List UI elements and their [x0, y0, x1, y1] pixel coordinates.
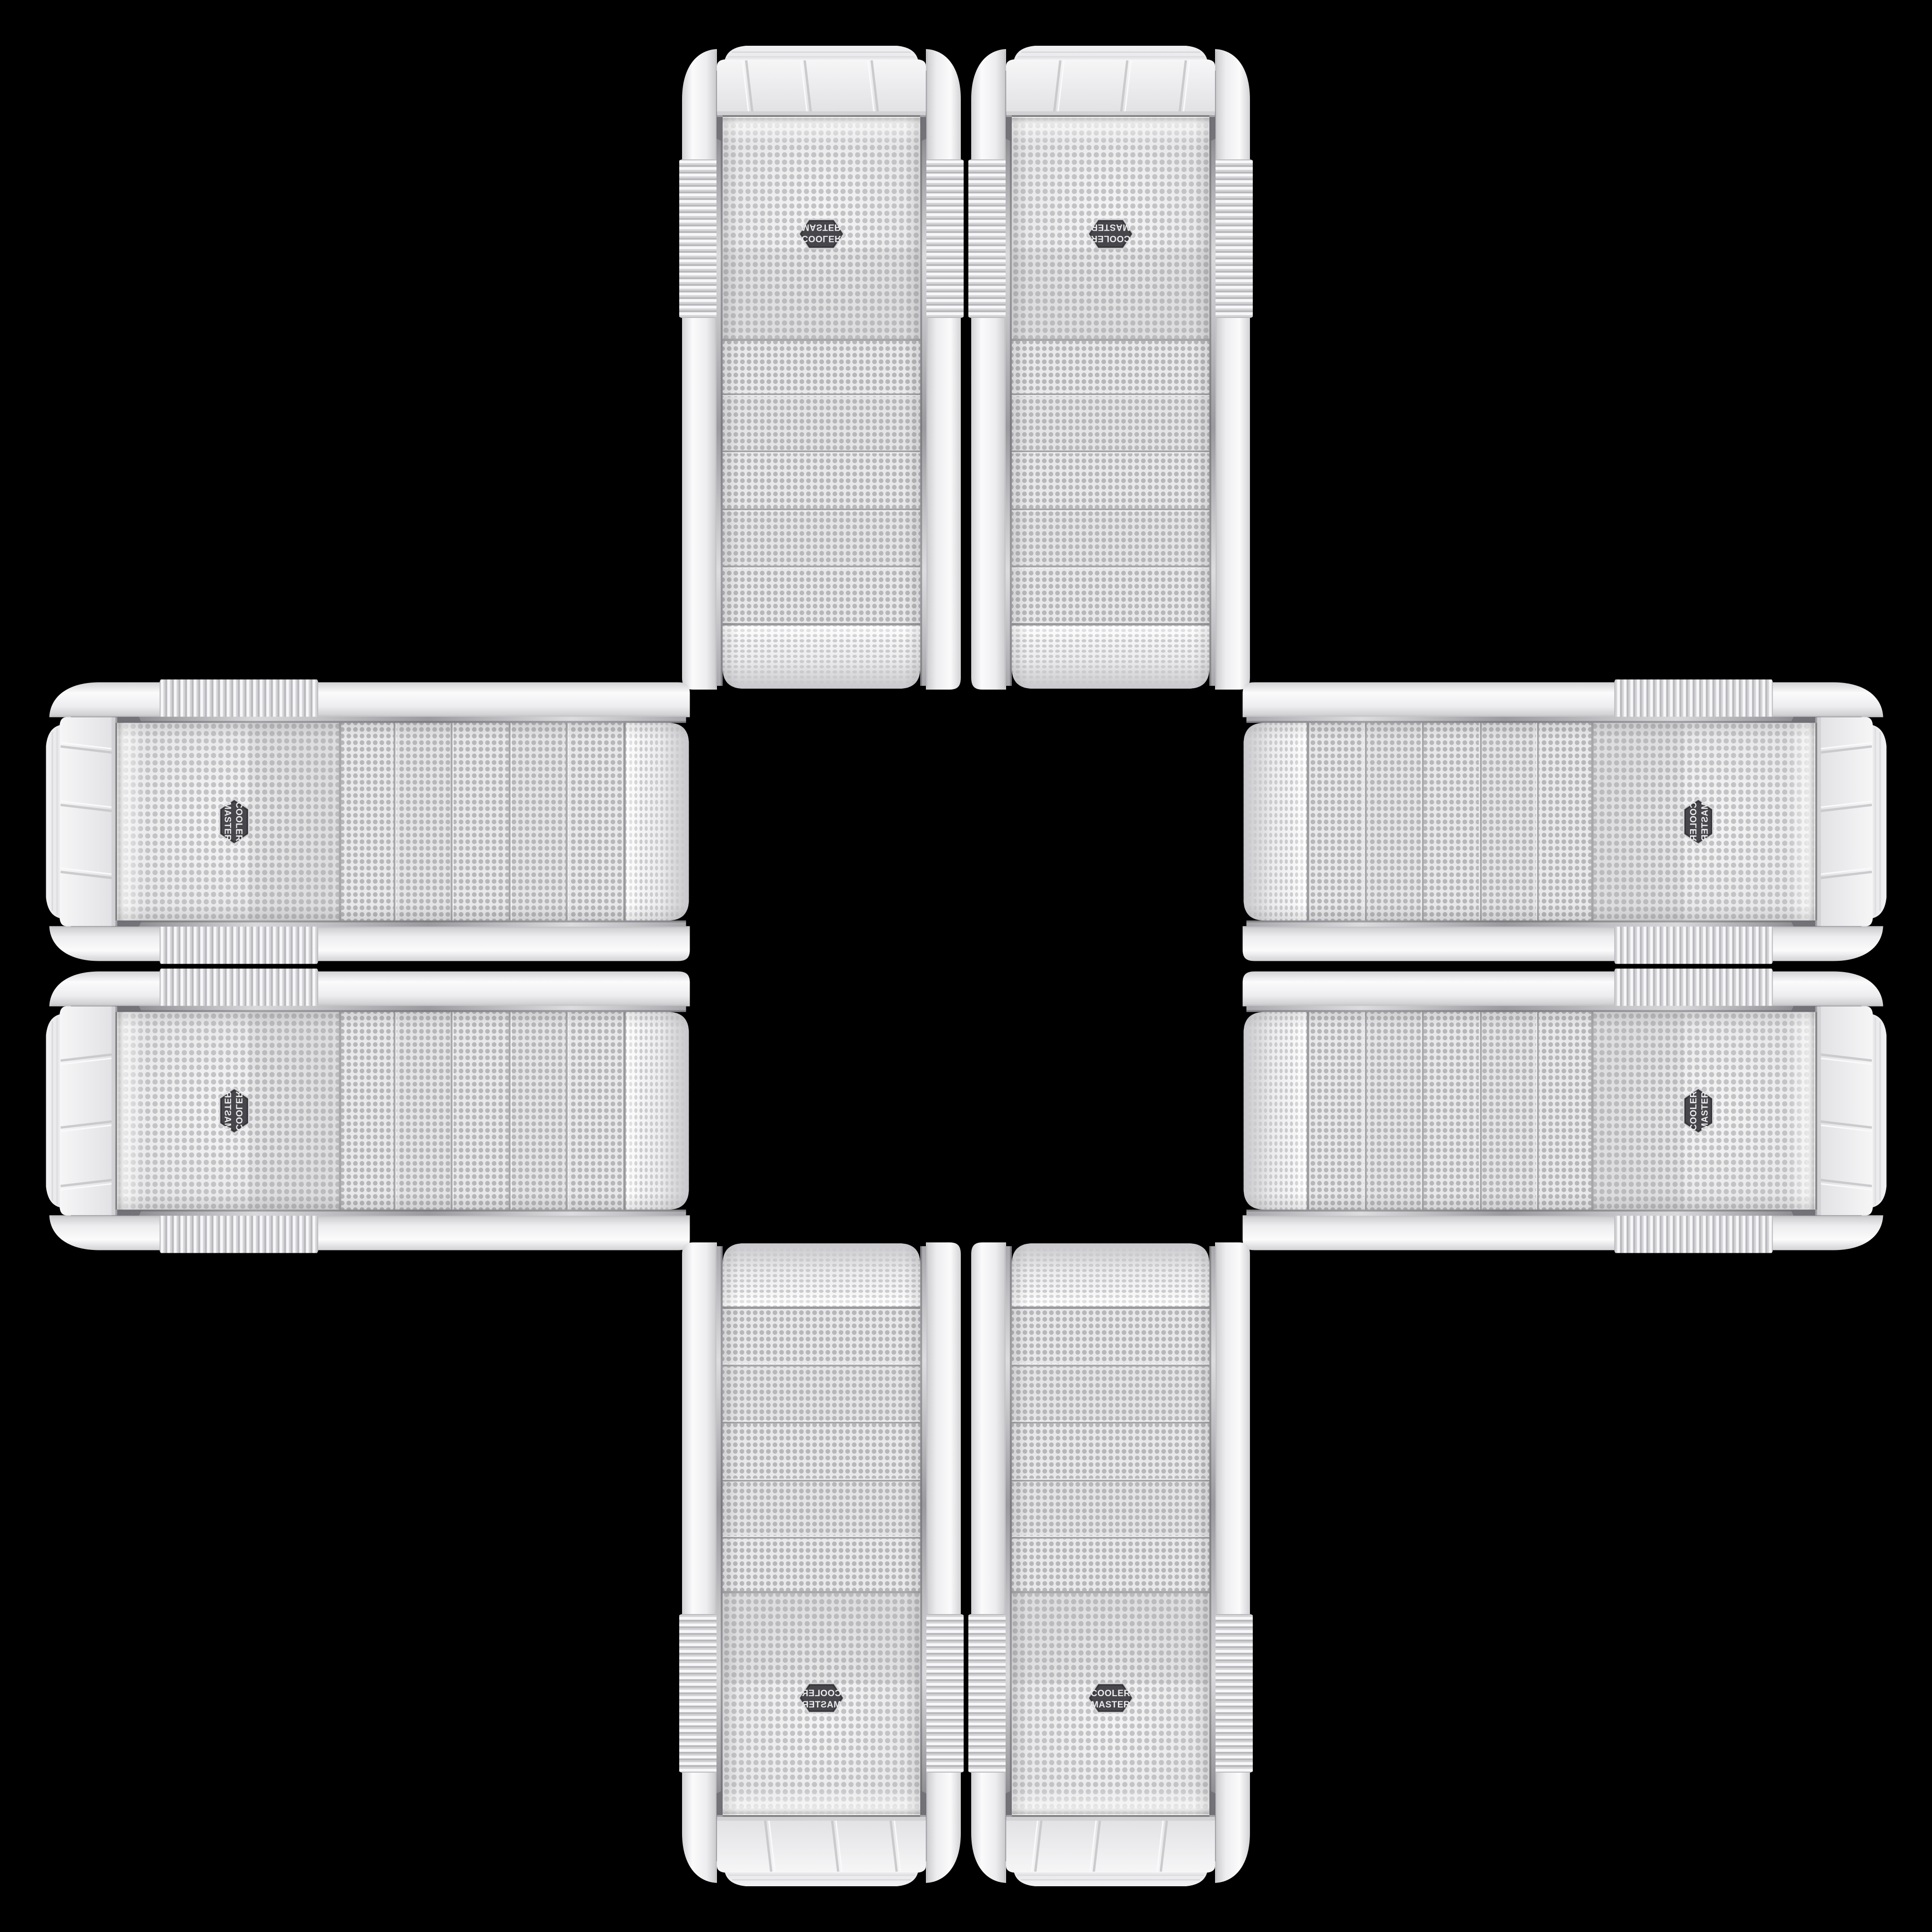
pc-case-left-top — [42, 679, 692, 964]
pc-case-top-right — [968, 42, 1253, 692]
pc-case-bottom-left — [679, 1240, 964, 1890]
pc-case-bottom-right — [968, 1240, 1253, 1890]
pc-case-left-bottom — [42, 968, 692, 1253]
cooler-master-case-collage: COOLER MASTER — [0, 0, 1932, 1932]
pc-case-right-top — [1240, 679, 1890, 964]
pc-case-top-left — [679, 42, 964, 692]
pc-case-right-bottom — [1240, 968, 1890, 1253]
